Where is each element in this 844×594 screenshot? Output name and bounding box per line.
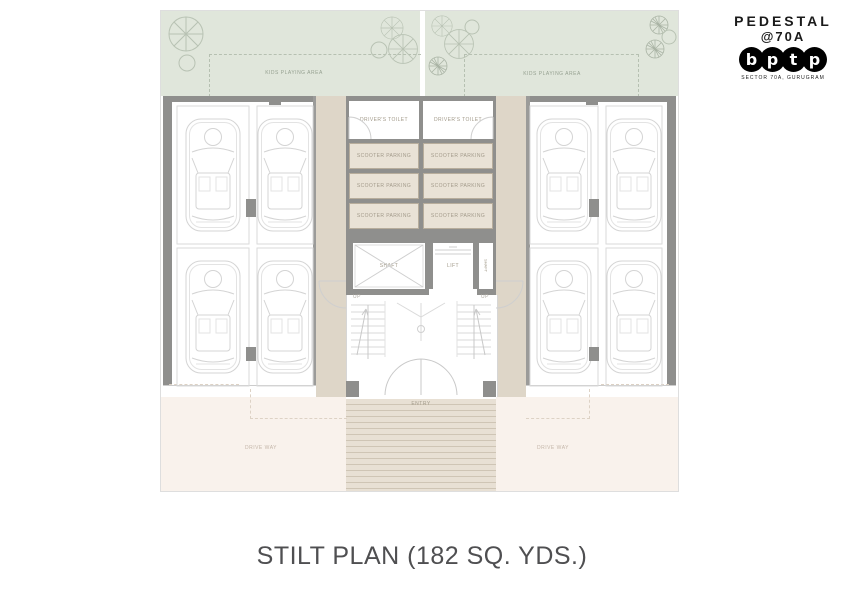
corridor-left (316, 96, 346, 399)
shaft-label: SHAFT (380, 263, 398, 269)
scooter-parking-cell: SCOOTER PARKING (423, 143, 493, 169)
drivers-toilet-left: DRIVER'S TOILET (349, 101, 419, 139)
bptp-letter: t (790, 50, 798, 69)
brand-name: PEDESTAL (731, 13, 835, 29)
outer-wall-left (163, 96, 172, 386)
drivers-toilet-left-label: DRIVER'S TOILET (360, 117, 408, 123)
central-core: DRIVER'S TOILET DRIVER'S TOILET SCOOTER … (346, 96, 496, 295)
driveway-right-dash (601, 384, 669, 385)
lobby-wall-stub-right (483, 381, 496, 397)
scooter-parking-label: SCOOTER PARKING (357, 183, 411, 189)
up-label-right: UP (477, 294, 493, 300)
driveway-right-boundary (526, 389, 590, 419)
lift-label: LIFT (447, 263, 459, 269)
driveway-left-boundary (250, 389, 347, 419)
scooter-parking-cell: SCOOTER PARKING (349, 203, 419, 229)
page: DRIVER'S TOILET DRIVER'S TOILET SCOOTER … (0, 0, 844, 594)
drivers-toilet-right-label: DRIVER'S TOILET (434, 117, 482, 123)
scooter-parking-cell: SCOOTER PARKING (423, 173, 493, 199)
driveway-left-label: DRIVE WAY (221, 445, 301, 451)
scooter-parking-label: SCOOTER PARKING (431, 213, 485, 219)
bptp-letter: b (746, 50, 757, 69)
driveway-left-dash (169, 384, 239, 385)
shaft-side-room: SHAFT (479, 243, 493, 289)
bptp-letter: p (809, 50, 820, 69)
bottom-line-right (526, 385, 676, 386)
entry-steps (346, 399, 496, 491)
lift-room: LIFT (433, 243, 473, 289)
brand-tagline: SECTOR 70A, GURUGRAM (731, 75, 835, 81)
scooter-parking-label: SCOOTER PARKING (357, 213, 411, 219)
top-wall-right (526, 96, 676, 102)
bptp-letter: p (767, 50, 778, 69)
driveway-right-label: DRIVE WAY (513, 445, 593, 451)
up-label-left: UP (349, 294, 365, 300)
bptp-letter-disc: p (802, 47, 827, 72)
scooter-parking-cell: SCOOTER PARKING (349, 173, 419, 199)
bottom-line-left (163, 385, 316, 386)
entrance-lobby (346, 295, 498, 397)
brand-block: PEDESTAL @70A b p t p SECTOR 70A, GURUGR… (731, 13, 835, 81)
drivers-toilet-right: DRIVER'S TOILET (423, 101, 493, 139)
kids-area-right-label: KIDS PLAYING AREA (492, 71, 612, 77)
entry-label: ENTRY (371, 401, 471, 407)
scooter-parking-label: SCOOTER PARKING (431, 153, 485, 159)
scooter-parking-label: SCOOTER PARKING (431, 183, 485, 189)
inner-wall-right (526, 96, 530, 386)
lobby-wall-stub-left (346, 381, 359, 397)
outer-wall-right (667, 96, 676, 386)
floor-plan: DRIVER'S TOILET DRIVER'S TOILET SCOOTER … (160, 10, 679, 492)
scooter-parking-label: SCOOTER PARKING (357, 153, 411, 159)
scooter-parking-cell: SCOOTER PARKING (349, 143, 419, 169)
scooter-parking-cell: SCOOTER PARKING (423, 203, 493, 229)
plan-title: STILT PLAN (182 SQ. YDS.) (0, 542, 844, 571)
top-wall-left (163, 96, 316, 102)
corridor-right (496, 96, 526, 399)
shaft-room: SHAFT (353, 243, 425, 289)
shaft-side-label: SHAFT (484, 259, 489, 272)
kids-area-left-label: KIDS PLAYING AREA (234, 70, 354, 76)
brand-subtitle: @70A (731, 29, 835, 44)
bptp-logo-icon: b p t p (731, 47, 835, 72)
